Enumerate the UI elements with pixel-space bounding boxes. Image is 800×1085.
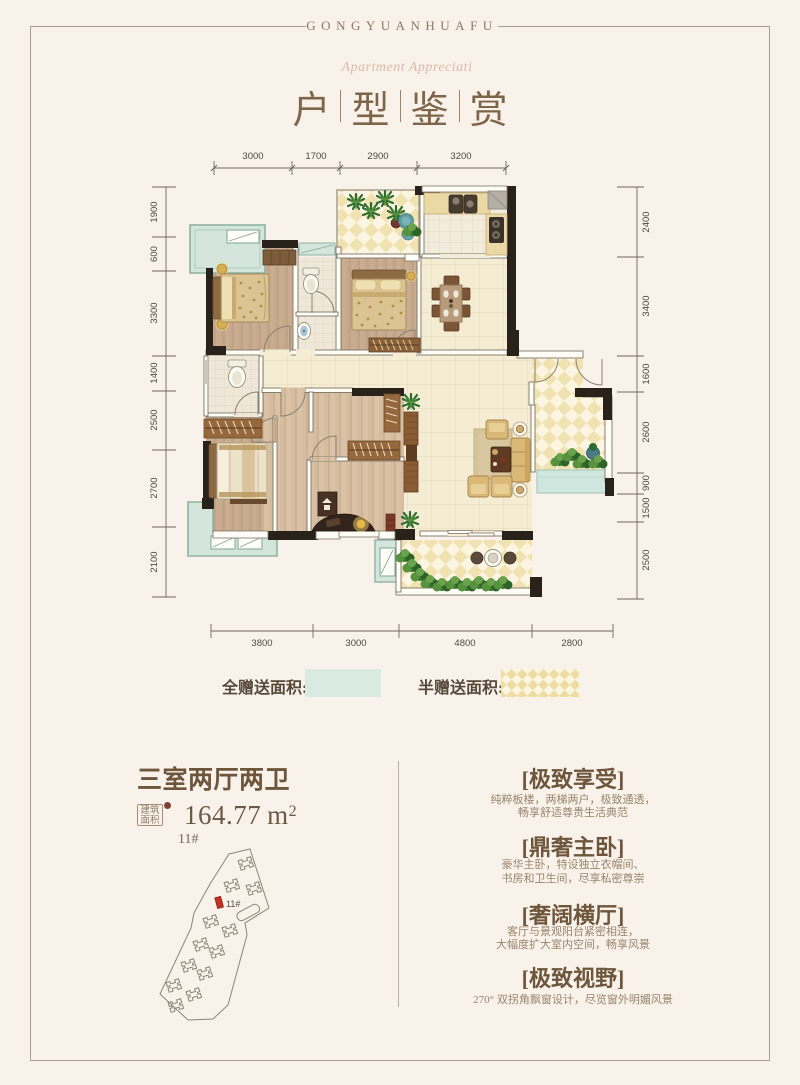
svg-text:1900: 1900 xyxy=(149,201,160,222)
svg-text:2100: 2100 xyxy=(149,551,160,572)
svg-text:11#: 11# xyxy=(226,899,240,909)
svg-text:1500: 1500 xyxy=(641,497,652,518)
svg-text:3800: 3800 xyxy=(251,638,272,649)
svg-text:3200: 3200 xyxy=(450,151,471,162)
svg-text:2600: 2600 xyxy=(641,421,652,442)
svg-text:2500: 2500 xyxy=(149,409,160,430)
svg-text:2900: 2900 xyxy=(367,151,388,162)
svg-text:3000: 3000 xyxy=(242,151,263,162)
svg-text:2800: 2800 xyxy=(561,638,582,649)
svg-text:2700: 2700 xyxy=(149,477,160,498)
svg-text:3400: 3400 xyxy=(641,295,652,316)
svg-text:1700: 1700 xyxy=(305,151,326,162)
svg-text:2500: 2500 xyxy=(641,549,652,570)
svg-text:3300: 3300 xyxy=(149,302,160,323)
svg-text:4800: 4800 xyxy=(454,638,475,649)
svg-text:2400: 2400 xyxy=(641,211,652,232)
svg-text:3000: 3000 xyxy=(345,638,366,649)
svg-text:900: 900 xyxy=(641,475,652,491)
svg-text:600: 600 xyxy=(149,246,160,262)
svg-text:1400: 1400 xyxy=(149,362,160,383)
svg-text:1600: 1600 xyxy=(641,363,652,384)
